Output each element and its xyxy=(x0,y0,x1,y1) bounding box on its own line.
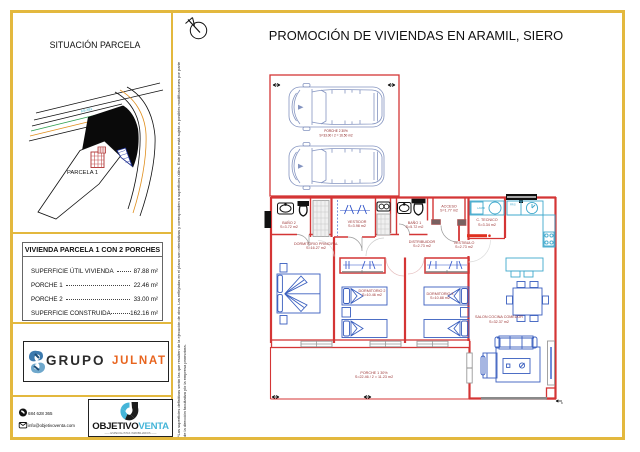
svg-text:S=32.37 m2: S=32.37 m2 xyxy=(489,320,509,324)
svg-text:SALON COCINA COMEDOR: SALON COCINA COMEDOR xyxy=(475,315,523,319)
svg-text:9: 9 xyxy=(561,401,563,405)
svg-text:S=22.46 / 2 = 11.23 m2: S=22.46 / 2 = 11.23 m2 xyxy=(355,375,393,379)
svg-text:S=5.72 m2: S=5.72 m2 xyxy=(406,225,424,229)
svg-text:S=3.98 m2: S=3.98 m2 xyxy=(348,224,366,228)
svg-text:S=33.00 / 2 = 16.50 m2: S=33.00 / 2 = 16.50 m2 xyxy=(319,134,353,138)
svg-text:S=3.34 m2: S=3.34 m2 xyxy=(478,223,496,227)
svg-text:S=2.73 m2: S=2.73 m2 xyxy=(413,244,431,248)
svg-text:S=10.46 m2: S=10.46 m2 xyxy=(362,293,382,297)
svg-text:S=2.73 m2: S=2.73 m2 xyxy=(455,245,473,249)
svg-text:S=1.77 m2: S=1.77 m2 xyxy=(440,209,458,213)
svg-text:S=3.72 m2: S=3.72 m2 xyxy=(280,225,298,229)
svg-text:C. TECNICO: C. TECNICO xyxy=(476,218,497,222)
svg-text:S=10.88 m2: S=10.88 m2 xyxy=(430,296,450,300)
svg-text:PORCHE 2 30%: PORCHE 2 30% xyxy=(324,129,348,133)
svg-text:FRIG: FRIG xyxy=(510,204,516,207)
svg-text:S=16.27 m2: S=16.27 m2 xyxy=(306,246,326,250)
svg-text:LAVAD: LAVAD xyxy=(477,206,485,210)
svg-text:PARCELA 1: PARCELA 1 xyxy=(67,170,98,176)
